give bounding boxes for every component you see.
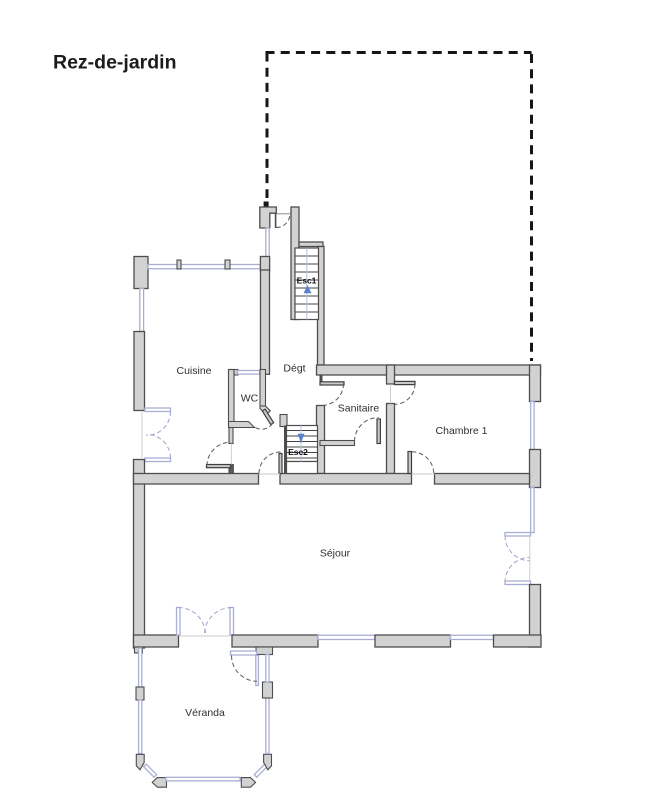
svg-text:Sanitaire: Sanitaire bbox=[338, 403, 380, 415]
svg-text:Séjour: Séjour bbox=[320, 548, 351, 560]
svg-text:Esc2: Esc2 bbox=[288, 447, 308, 457]
svg-text:Esc1: Esc1 bbox=[297, 276, 317, 286]
svg-text:WC: WC bbox=[241, 393, 259, 405]
svg-text:Cuisine: Cuisine bbox=[176, 365, 211, 377]
svg-text:Véranda: Véranda bbox=[185, 707, 225, 719]
svg-text:Rez-de-jardin: Rez-de-jardin bbox=[53, 52, 177, 74]
svg-text:Dégt: Dégt bbox=[283, 363, 305, 375]
svg-text:Chambre 1: Chambre 1 bbox=[436, 425, 488, 437]
